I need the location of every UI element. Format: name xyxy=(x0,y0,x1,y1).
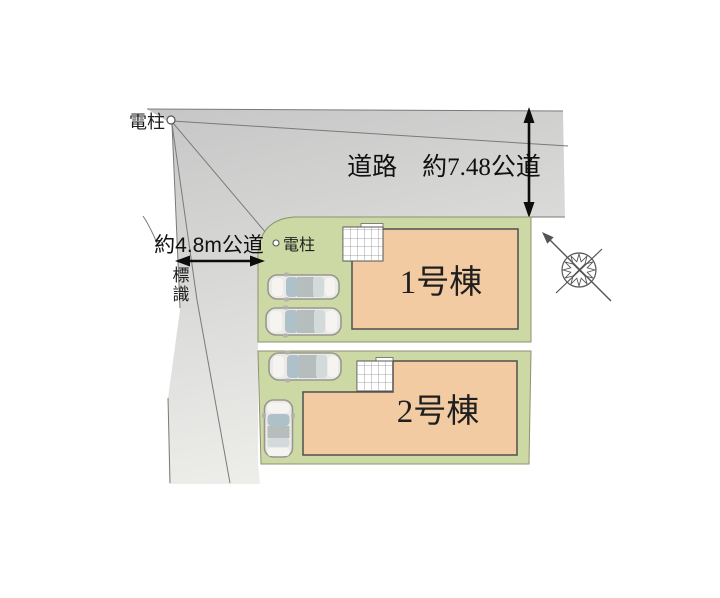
car-3 xyxy=(269,351,341,383)
utility-pole-top-label: 電柱 xyxy=(129,112,165,132)
building-1-label: 1号棟 xyxy=(400,264,483,301)
building-2-label: 2号棟 xyxy=(397,393,480,430)
compass-icon xyxy=(542,232,611,301)
car-1 xyxy=(268,273,339,302)
main-road-label: 道路 約7.48公道 xyxy=(347,153,541,181)
car-4 xyxy=(262,400,295,457)
site-plan-canvas: 電柱 道路 約7.48公道 1号棟 2号棟 電柱 約4.8m公道 標識 xyxy=(0,0,720,598)
utility-pole-plot-label: 電柱 xyxy=(283,236,315,254)
side-road-label: 約4.8m公道 xyxy=(154,234,264,257)
car-2 xyxy=(266,306,341,338)
sign-label: 標識 xyxy=(170,266,190,304)
utility-pole-top-icon xyxy=(167,116,175,124)
site-plan-drawing: 電柱 道路 約7.48公道 1号棟 2号棟 電柱 約4.8m公道 標識 xyxy=(0,0,720,598)
utility-pole-plot-icon xyxy=(273,240,279,246)
